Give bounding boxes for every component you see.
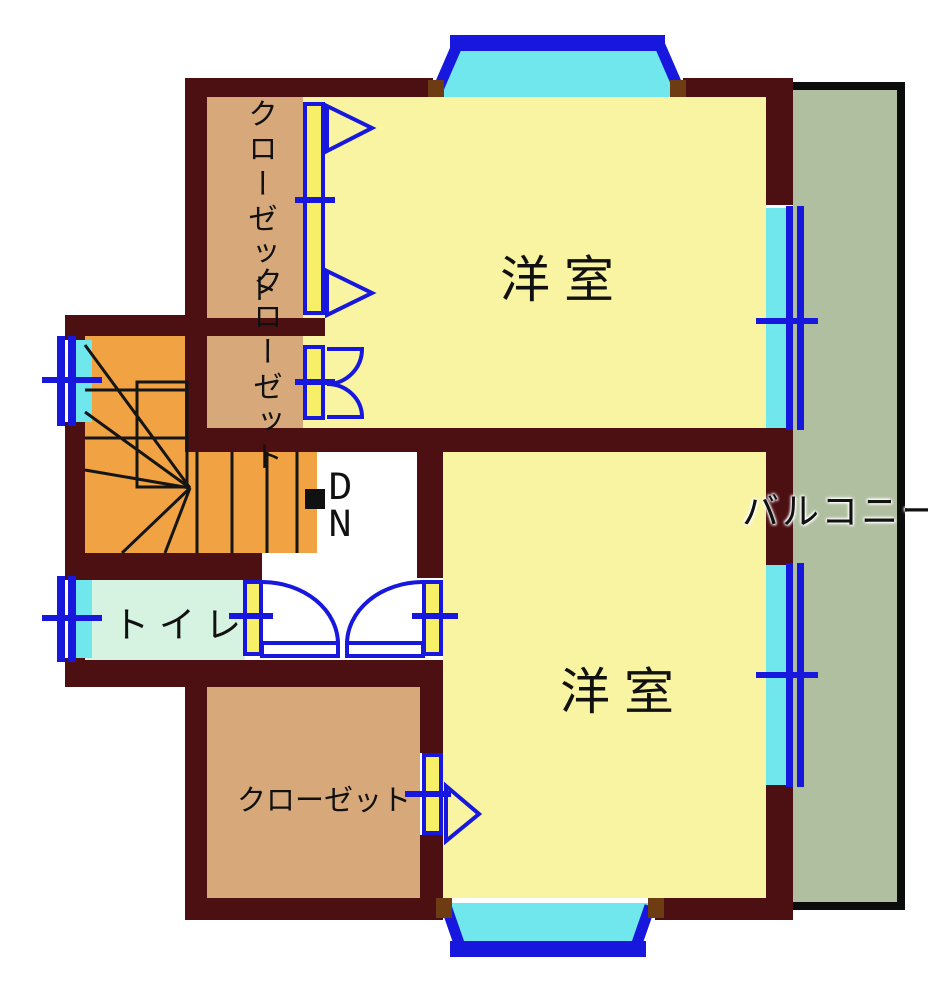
- toilet-label: トイレ: [113, 596, 251, 648]
- western-room-top-label: 洋室: [500, 240, 628, 312]
- bay-window-top: [428, 35, 686, 97]
- closet-upper-folding-doors: [327, 106, 372, 315]
- room-bottom-door-swing: [347, 582, 423, 656]
- balcony-label: バルコニー: [742, 481, 928, 535]
- closet-bottom-folding-door: [446, 786, 479, 841]
- bay-window-bottom: [436, 898, 664, 957]
- stairs-down-marker: [305, 489, 325, 509]
- western-room-bottom-label: 洋室: [560, 652, 688, 724]
- closet-lower-double-door: [327, 349, 362, 417]
- toilet-door-swing: [262, 582, 338, 656]
- closet-bottom-label: クローゼット: [237, 777, 411, 819]
- closet-lower-label: クローゼット: [242, 266, 286, 486]
- floor-plan: 洋室 洋室 クローゼット クローゼット トイレ クローゼット バルコニー D N: [0, 0, 928, 1000]
- stairs-down-label-n: N: [328, 507, 352, 547]
